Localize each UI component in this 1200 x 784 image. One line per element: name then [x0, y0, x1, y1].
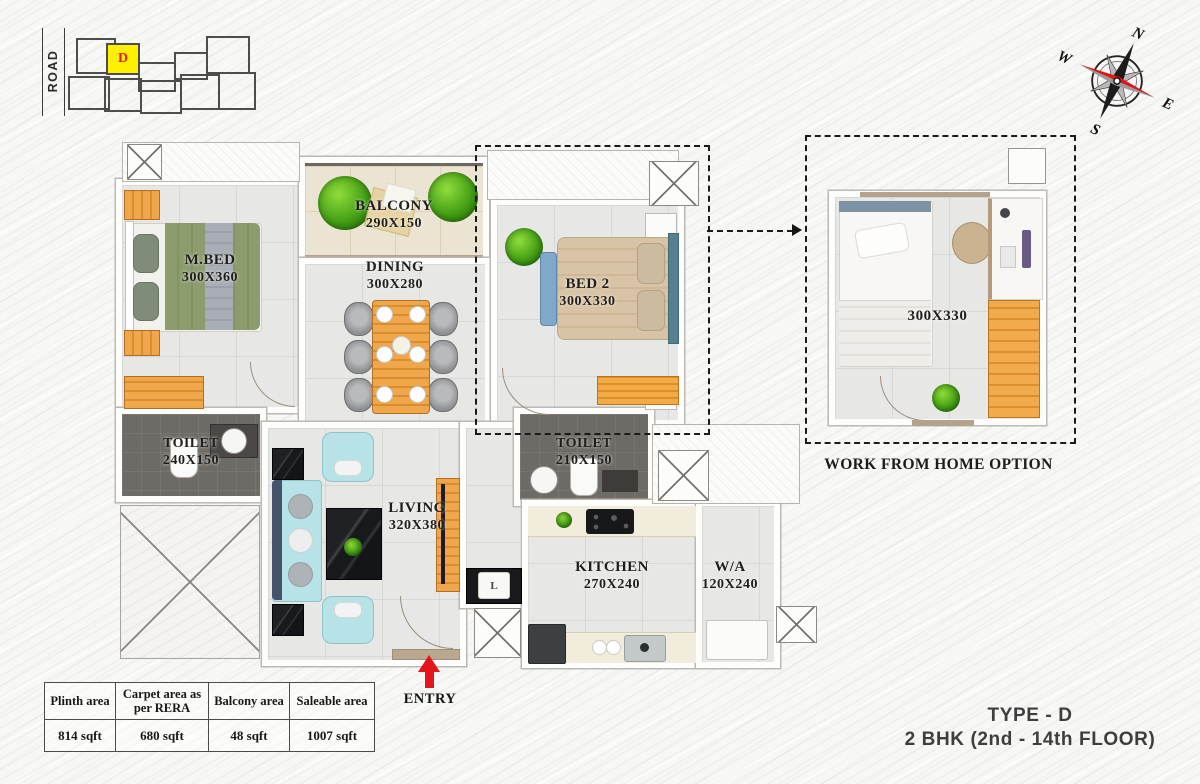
- mbed-dresser: [124, 376, 204, 409]
- area-table-value: 1007 sqft: [290, 720, 375, 752]
- compass-e-label: E: [1159, 94, 1176, 114]
- room-label-mbed: M.BED 300X360: [122, 252, 298, 286]
- washing-machine: [706, 620, 768, 660]
- type-label: TYPE - D: [880, 704, 1180, 728]
- callout-arrowhead: [792, 224, 802, 236]
- road-label: ROAD: [46, 40, 60, 102]
- room-dims: 290X150: [305, 215, 483, 232]
- compass-n-label: N: [1129, 23, 1148, 44]
- dining-chair: [428, 302, 458, 336]
- building-outline: [140, 80, 182, 114]
- room-name: LIVING: [357, 500, 477, 517]
- mbed-cabinet: [124, 330, 160, 356]
- room-name: TOILET: [520, 435, 648, 452]
- area-table-header-row: Plinth area Carpet area as per RERA Balc…: [45, 683, 375, 720]
- toilet2-basin: [530, 466, 558, 494]
- room-label-balcony: BALCONY 290X150: [305, 198, 483, 232]
- living-armchair-cushion: [334, 602, 362, 618]
- area-table-header: Saleable area: [290, 683, 375, 720]
- floor-range-label: 2 BHK (2nd - 14th FLOOR): [880, 728, 1180, 752]
- living-tv-unit: [436, 478, 460, 592]
- kitchen-sink-drain: [640, 643, 649, 652]
- dining-plate: [376, 346, 393, 363]
- living-tv: [441, 484, 445, 584]
- dining-chair: [344, 302, 374, 336]
- coffee-table-plant: [344, 538, 362, 556]
- dining-plate: [409, 346, 426, 363]
- area-table-header: Balcony area: [209, 683, 290, 720]
- room-dims: 300X280: [305, 276, 485, 293]
- area-table-value: 814 sqft: [45, 720, 116, 752]
- room-name: KITCHEN: [528, 559, 696, 576]
- building-outline: [206, 36, 250, 74]
- dining-plate: [409, 386, 426, 403]
- foyer-unit: L: [478, 572, 510, 599]
- site-key-plan: ROAD D: [38, 22, 263, 122]
- kitchen-plate: [592, 640, 607, 655]
- kitchen-plant: [556, 512, 572, 528]
- road-line: [64, 28, 65, 116]
- room-name: TOILET: [122, 435, 260, 452]
- unit-letter: D: [118, 51, 128, 67]
- room-label-wa: W/A 120X240: [686, 559, 774, 593]
- wfh-caption: WORK FROM HOME OPTION: [800, 456, 1077, 474]
- room-label-kitchen: KITCHEN 270X240: [528, 559, 696, 593]
- compass-rose-icon: N E S W: [1058, 22, 1176, 140]
- entry-arrow-stem: [425, 671, 434, 688]
- dining-chair: [428, 340, 458, 374]
- room-label-toilet2: TOILET 210X150: [520, 435, 648, 469]
- living-sofa-cushion: [288, 562, 313, 587]
- bed2-callout-box: [475, 145, 710, 435]
- living-side-table: [272, 604, 304, 636]
- dining-chair: [344, 378, 374, 412]
- area-table-header: Carpet area as per RERA: [116, 683, 209, 720]
- room-dims: 210X150: [520, 452, 648, 469]
- compass-s-label: S: [1088, 120, 1103, 139]
- room-name: BALCONY: [305, 198, 483, 215]
- area-table-header: Plinth area: [45, 683, 116, 720]
- area-table-value-row: 814 sqft 680 sqft 48 sqft 1007 sqft: [45, 720, 375, 752]
- toilet2-mat: [602, 470, 638, 492]
- room-dims: 270X240: [528, 576, 696, 593]
- wfh-closet: [1008, 148, 1046, 184]
- room-label-toilet1: TOILET 240X150: [122, 435, 260, 469]
- floorplan-page: ROAD D: [0, 0, 1200, 784]
- duct-shaft: [658, 450, 709, 501]
- mbed-pillow: [133, 282, 159, 321]
- living-armchair-cushion: [334, 460, 362, 476]
- dining-chair: [344, 340, 374, 374]
- room-dims: 320X380: [357, 517, 477, 534]
- building-outline: [180, 74, 220, 110]
- kitchen-plate: [606, 640, 621, 655]
- living-sofa-back: [272, 480, 282, 600]
- building-outline: [104, 78, 142, 112]
- duct-shaft: [474, 608, 521, 658]
- building-outline: [218, 72, 256, 110]
- entry-arrow-icon: [418, 655, 440, 672]
- dining-centerpiece: [392, 336, 411, 355]
- mbed-nightstand: [124, 190, 160, 220]
- foyer-unit-label: L: [490, 580, 497, 592]
- area-table-value: 680 sqft: [116, 720, 209, 752]
- duct-shaft: [127, 144, 162, 180]
- road-line: [42, 28, 43, 116]
- open-duct-area: [120, 505, 260, 659]
- dining-chair: [428, 378, 458, 412]
- room-dims: 120X240: [686, 576, 774, 593]
- room-name: W/A: [686, 559, 774, 576]
- area-table: Plinth area Carpet area as per RERA Balc…: [44, 682, 375, 752]
- unit-type-footer: TYPE - D 2 BHK (2nd - 14th FLOOR): [880, 704, 1180, 751]
- compass-w-label: W: [1058, 47, 1075, 69]
- room-label-living: LIVING 320X380: [357, 500, 477, 534]
- living-side-table: [272, 448, 304, 480]
- area-table-value: 48 sqft: [209, 720, 290, 752]
- dining-plate: [409, 306, 426, 323]
- dining-plate: [376, 306, 393, 323]
- entry-label: ENTRY: [398, 691, 462, 708]
- dining-plate: [376, 386, 393, 403]
- highlighted-unit-d: D: [106, 43, 140, 75]
- room-label-dining: DINING 300X280: [305, 259, 485, 293]
- duct-shaft: [776, 606, 817, 643]
- room-dims: 240X150: [122, 452, 260, 469]
- kitchen-stove: [586, 509, 634, 534]
- living-sofa-cushion: [288, 528, 313, 553]
- kitchen-cabinet: [528, 624, 566, 664]
- living-sofa-cushion: [288, 494, 313, 519]
- room-dims: 300X360: [122, 269, 298, 286]
- room-name: M.BED: [122, 252, 298, 269]
- room-name: DINING: [305, 259, 485, 276]
- callout-connector-line: [707, 230, 793, 232]
